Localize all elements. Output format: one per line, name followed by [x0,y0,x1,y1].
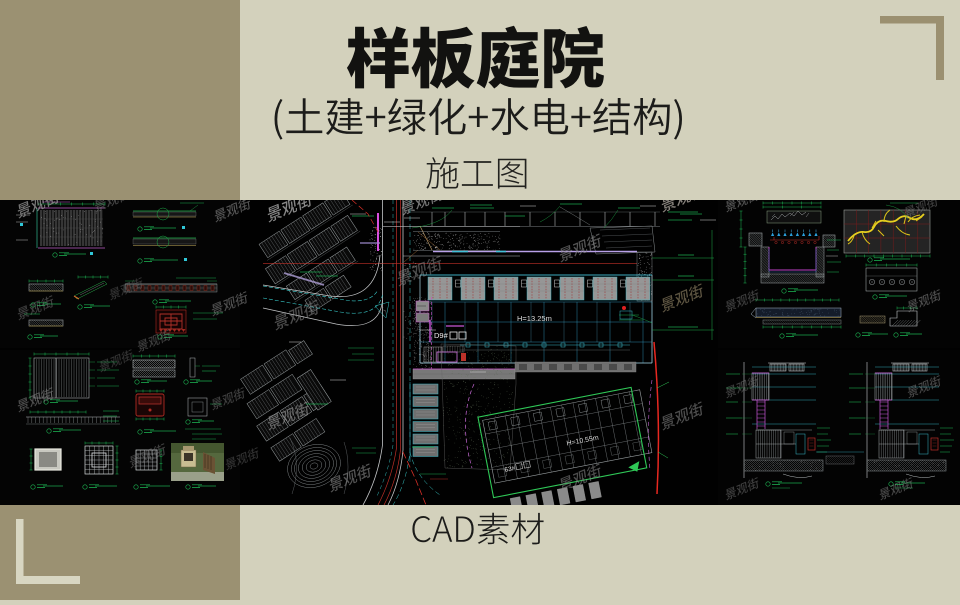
svg-text:H=13.25m: H=13.25m [517,314,552,323]
svg-text:D9#: D9# [434,331,449,340]
